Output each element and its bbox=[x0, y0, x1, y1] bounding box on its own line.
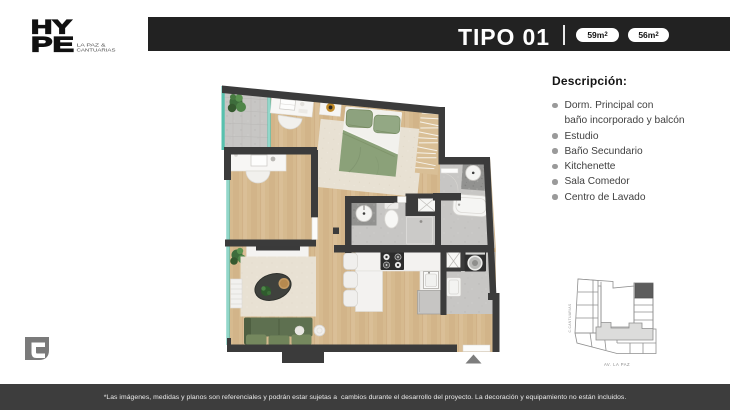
svg-text:C.CANTUARIAS: C.CANTUARIAS bbox=[568, 303, 572, 332]
svg-text:CANTUARIAS: CANTUARIAS bbox=[77, 48, 116, 53]
svg-text:AV. LA PAZ: AV. LA PAZ bbox=[604, 362, 630, 367]
svg-text:PE: PE bbox=[31, 34, 74, 57]
